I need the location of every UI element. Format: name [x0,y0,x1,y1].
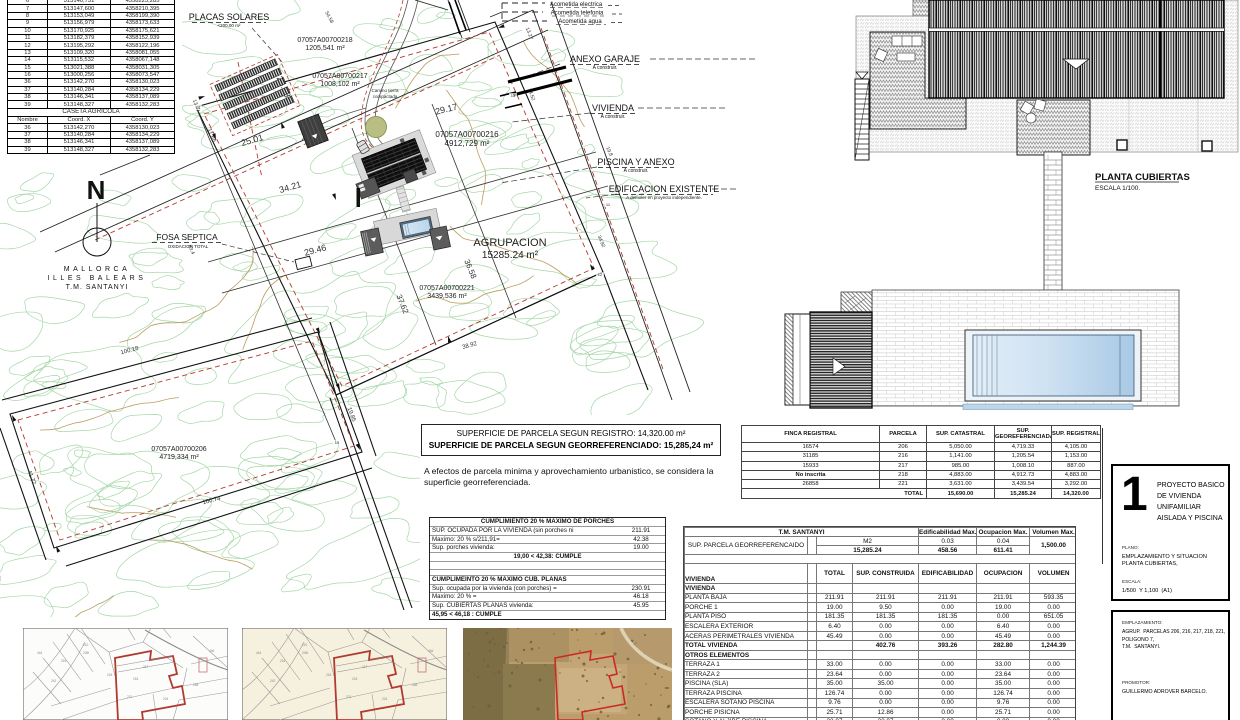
svg-text:446: 446 [209,649,215,653]
svg-text:288: 288 [412,683,418,687]
svg-text:07057A00700216: 07057A00700216 [435,130,499,139]
svg-text:210: 210 [83,643,89,647]
svg-text:444: 444 [256,651,262,655]
svg-text:210: 210 [302,643,308,647]
svg-text:07057A00700218: 07057A00700218 [297,37,352,44]
svg-text:12: 12 [598,272,603,277]
svg-text:07057A00700221: 07057A00700221 [419,285,474,292]
svg-text:07057A00700217: 07057A00700217 [312,73,367,80]
svg-text:242: 242 [51,679,57,683]
svg-text:34.92: 34.92 [596,235,607,249]
svg-text:MALLORCA: MALLORCA [64,266,131,273]
svg-text:218: 218 [107,673,113,677]
svg-text:T.M. SANTANYI: T.M. SANTANYI [66,284,129,291]
svg-text:EDIFICACION EXISTENTE: EDIFICACION EXISTENTE [609,184,720,194]
svg-text:100.18: 100.18 [120,346,140,357]
svg-text:ANEXO GARAJE: ANEXO GARAJE [570,54,640,64]
svg-text:216: 216 [280,659,286,663]
svg-text:FOSA SEPTICA: FOSA SEPTICA [156,232,218,242]
svg-text:19.85: 19.85 [346,407,357,424]
svg-text:1205,541 m²: 1205,541 m² [305,45,345,52]
svg-text:A demoler en proyecto independ: A demoler en proyecto independiente. [626,195,702,200]
svg-text:221: 221 [346,695,352,699]
svg-text:36.58: 36.58 [462,258,478,280]
svg-text:29.46: 29.46 [303,242,327,257]
svg-text:PISCINA Y ANEXO: PISCINA Y ANEXO [597,157,674,167]
svg-text:100.74: 100.74 [202,496,222,507]
svg-text:ILLES BALEARS: ILLES BALEARS [48,275,147,282]
svg-text:217: 217 [143,665,149,669]
svg-text:compactada: compactada [373,94,398,99]
svg-text:07057A00700206: 07057A00700206 [151,446,206,453]
svg-text:444: 444 [37,651,43,655]
svg-text:4912,729 m²: 4912,729 m² [445,139,490,148]
svg-text:224: 224 [163,697,169,701]
svg-text:288: 288 [193,683,199,687]
svg-text:Acometida electrica: Acometida electrica [550,2,603,8]
svg-text:15285.24 m²: 15285.24 m² [482,250,539,261]
svg-text:217: 217 [362,665,368,669]
svg-text:PLACAS SOLARES: PLACAS SOLARES [189,12,270,22]
svg-text:PLANTA CUBIERTAS: PLANTA CUBIERTAS [1095,172,1190,183]
svg-text:14: 14 [196,105,201,110]
svg-text:38.92: 38.92 [462,341,479,351]
svg-text:A construir.: A construir. [601,114,626,120]
svg-text:OXIDACION TOTAL: OXIDACION TOTAL [168,244,209,249]
svg-text:Camino tierra: Camino tierra [371,88,399,93]
svg-text:AGRUPACION: AGRUPACION [473,237,546,249]
svg-text:34.21: 34.21 [278,179,302,195]
svg-text:A construir.: A construir. [593,65,618,71]
svg-text:N: N [87,175,106,205]
svg-text:Acometida agua: Acometida agua [558,19,602,25]
svg-text:ESCALA 1/100.: ESCALA 1/100. [1095,185,1140,192]
svg-text:218: 218 [352,677,358,681]
svg-text:221: 221 [127,695,133,699]
svg-text:242: 242 [270,679,276,683]
svg-text:15: 15 [335,440,340,445]
svg-text:1008,102 m²: 1008,102 m² [320,81,360,88]
svg-text:VIVIENDA: VIVIENDA [592,103,634,113]
svg-text:A construir.: A construir. [624,168,649,174]
svg-text:<200,00 m²: <200,00 m² [218,23,241,28]
svg-text:218: 218 [326,673,332,677]
svg-text:218: 218 [133,677,139,681]
svg-text:206t: 206t [83,651,89,655]
svg-text:224: 224 [382,697,388,701]
svg-text:13: 13 [511,93,516,98]
svg-text:Acometida telefonia: Acometida telefonia [551,11,604,17]
svg-text:29.17: 29.17 [434,102,458,117]
svg-text:4719,334 m²: 4719,334 m² [159,454,199,461]
svg-text:41.77: 41.77 [26,470,37,487]
svg-text:206t: 206t [302,651,308,655]
svg-text:216: 216 [61,659,67,663]
svg-text:3439,536 m²: 3439,536 m² [427,293,467,300]
svg-text:446: 446 [428,649,434,653]
svg-text:54.58: 54.58 [323,11,334,25]
